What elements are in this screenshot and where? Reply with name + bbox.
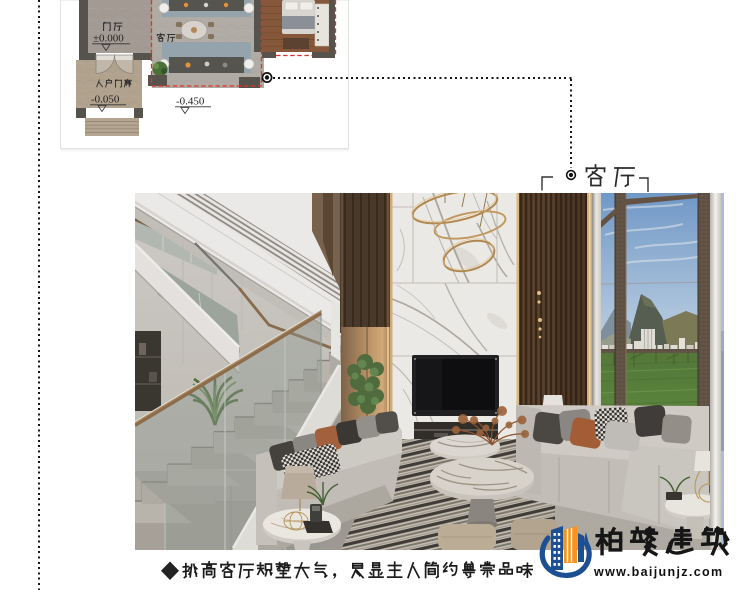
svg-text:±0.000: ±0.000 (93, 33, 124, 45)
svg-text:www.baijunjz.com: www.baijunjz.com (593, 565, 723, 579)
svg-text:-0.450: -0.450 (176, 96, 205, 108)
svg-text:-0.050: -0.050 (91, 94, 120, 106)
